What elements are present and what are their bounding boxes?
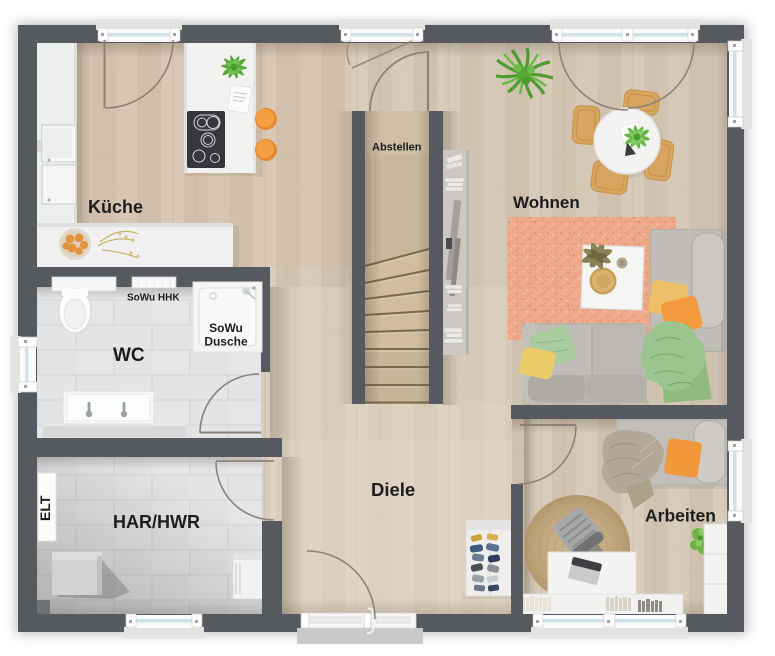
svg-text:Abstellen: Abstellen — [372, 142, 422, 154]
svg-text:Arbeiten: Arbeiten — [645, 506, 716, 526]
svg-text:Diele: Diele — [371, 479, 415, 500]
svg-text:SoWu HHK: SoWu HHK — [127, 293, 180, 304]
svg-text:Wohnen: Wohnen — [513, 193, 580, 212]
svg-text:Dusche: Dusche — [204, 335, 248, 349]
svg-text:HAR/HWR: HAR/HWR — [113, 512, 200, 532]
svg-text:SoWu: SoWu — [209, 321, 243, 335]
svg-text:Küche: Küche — [88, 197, 143, 217]
svg-text:WC: WC — [113, 345, 145, 366]
svg-text:ELT: ELT — [37, 495, 53, 521]
